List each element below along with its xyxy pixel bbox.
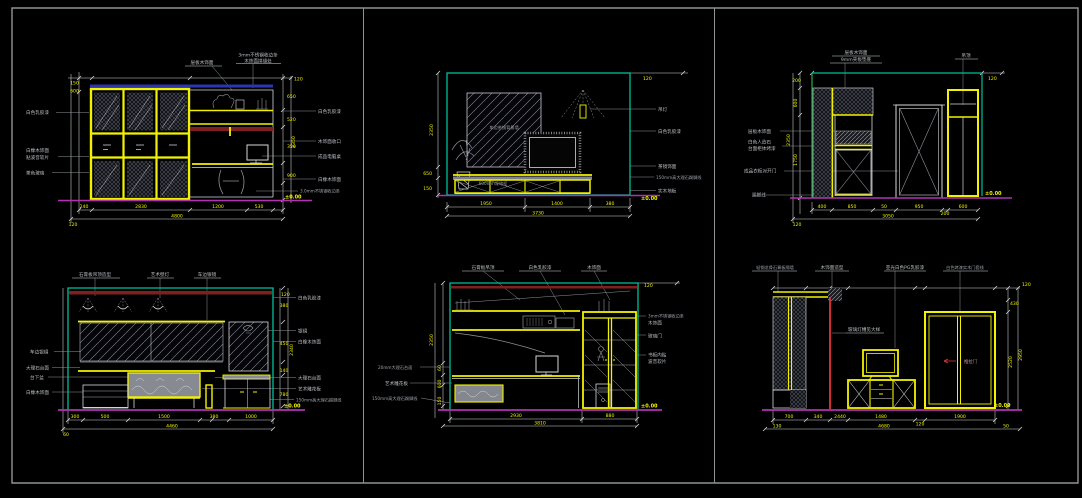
material-label: 实木地板 <box>658 188 677 195</box>
level-marker: ±0.00 <box>641 196 658 202</box>
material-label: 艺术雕花板 <box>298 386 321 393</box>
wardrobe-unit <box>91 89 189 199</box>
desk-shelving <box>452 299 610 408</box>
panel-wardrobe-desk-elevation: 层板木饰面 3mm不锈钢收边条 木饰面拼缝处 白色乳胶漆 白橡木饰面 贴波音软片… <box>26 52 341 229</box>
material-label: 茶镜饰面 <box>658 163 677 170</box>
dim-label: 150 <box>437 397 443 406</box>
material-label: 20mm大理石台面 <box>378 364 412 371</box>
material-label: 白色乳胶漆 <box>318 108 341 115</box>
material-label: 木饰面 <box>587 264 601 271</box>
material-label: 车边银镜 <box>30 349 49 356</box>
dim-label: 1200 <box>212 204 224 210</box>
dim-label: 120 <box>916 422 925 428</box>
panel-entry-closet-elevation: 层板木饰面 9mm夹板垫底 吊顶 层板木饰面 白色人造石 台面柜体烤漆 成品衣柜… <box>744 49 1012 228</box>
panel-study-elevation: 石膏板吊顶 白色乳胶漆 木饰面 20mm大理石台面 艺术雕花板 150mm高大理… <box>372 264 685 428</box>
dim-label: 120 <box>69 222 78 228</box>
tv-cabinet <box>453 175 592 194</box>
pendant-lamp <box>561 90 605 118</box>
material-label: 3mm不锈钢收边条 <box>238 52 278 59</box>
dim-label: 2350 <box>786 134 792 146</box>
dim-label: 650 <box>423 171 432 177</box>
dim-label: 150 <box>423 186 432 192</box>
dim-label: 850 <box>848 204 857 210</box>
dim-label: 240 <box>80 204 89 210</box>
dim-label: 340 <box>814 414 823 420</box>
dim-label: 600 <box>959 204 968 210</box>
dim-label: 120 <box>294 77 303 83</box>
panel-vanity-elevation: 石膏板吊顶造型 艺术壁灯 车边银镜 车边银镜 大理石台面 台下盆 白橡木饰面 白… <box>26 271 342 438</box>
dim-label: 4800 <box>171 214 183 220</box>
level-marker: ±0.00 <box>985 191 1002 197</box>
door-type-label: 推拉门 <box>964 358 977 365</box>
dim-label: 60 <box>63 432 69 438</box>
material-label: 车边茶镜背景墙 <box>489 124 518 131</box>
partition-wall <box>773 288 842 408</box>
side-low-cabinet <box>83 385 128 408</box>
dim-label: 700 <box>785 414 794 420</box>
material-label: 3mm不锈钢收边条 <box>648 313 685 320</box>
tv-screen <box>525 133 580 172</box>
dim-label: 2340 <box>289 344 295 356</box>
wardrobe-cabinet <box>948 90 978 196</box>
material-label: 玻璃门 <box>648 333 662 340</box>
dim-label: 1750 <box>793 154 799 166</box>
material-label: 台面柜体烤漆 <box>748 145 776 152</box>
dim-label: 50 <box>1003 424 1009 430</box>
dim-label: 120 <box>793 222 802 228</box>
wall-lamps <box>79 298 167 312</box>
material-label: 白橡木饰面 <box>298 339 321 346</box>
material-label: 书柜内贴 <box>648 352 667 359</box>
material-label: 层板木饰面 <box>191 59 214 66</box>
dresser-mirror <box>229 322 268 371</box>
material-label: 白橡木饰面 <box>26 147 49 154</box>
dim-label: 1480 <box>875 414 887 420</box>
dim-label: 380 <box>210 414 219 420</box>
tv-unit <box>848 350 915 408</box>
material-label: 150mm高大理石踢脚线 <box>296 397 342 404</box>
material-label: 白橡木饰面 <box>26 389 49 396</box>
dim-label: 2350 <box>291 136 297 148</box>
dim-label: 400 <box>818 204 827 210</box>
material-label: 木饰面收口 <box>318 138 341 145</box>
material-label: 层板木饰面 <box>845 49 868 56</box>
material-label: 3.0mm不锈钢收边条 <box>300 188 341 195</box>
dim-label: 2350 <box>429 334 435 346</box>
material-label: 吊顶 <box>961 53 971 59</box>
dim-label: 3810 <box>534 421 546 427</box>
material-label: 车边银镜 <box>198 271 217 278</box>
dim-label: 2930 <box>510 413 522 419</box>
level-marker: ±0.00 <box>994 403 1011 409</box>
side-cabinet <box>835 115 872 196</box>
ceiling-band <box>69 291 272 295</box>
material-label: 白色人造石 <box>748 139 771 146</box>
panel-bedroom-elevation: 轻钢龙骨石膏板隔墙 木饰面造型 亚光白色PG乳胶漆 白色烤漆实木门套线 玻璃灯槽… <box>752 264 1031 431</box>
dim-label: 2520 <box>1008 356 1014 368</box>
dim-label: 380 <box>606 201 615 207</box>
desk-area <box>190 90 273 197</box>
material-label: 亚光白色PG乳胶漆 <box>886 264 925 271</box>
dim-label: 300 <box>71 414 80 420</box>
dim-label: 950 <box>915 204 924 210</box>
material-label: 吊灯 <box>658 106 668 113</box>
level-marker: ±0.00 <box>285 195 302 201</box>
carved-drawer-front <box>455 385 503 402</box>
ceiling-band <box>451 286 637 289</box>
vanity-cabinet <box>78 371 215 408</box>
dim-label: 140 <box>280 368 289 374</box>
dim-label: 500 <box>101 414 110 420</box>
dim-label: 1500 <box>158 414 170 420</box>
shelf-decor-sketch <box>213 94 268 109</box>
dim-label: 3730 <box>532 211 544 217</box>
dim-label: 2440 <box>834 414 846 420</box>
material-label: 9mm夹板垫底 <box>841 56 872 63</box>
dim-label: 120 <box>1022 282 1031 288</box>
material-label: 木饰面 <box>648 320 662 327</box>
desktop-monitor <box>247 145 268 160</box>
dim-label: 2950 <box>1018 349 1024 361</box>
dim-label: 4460 <box>166 424 178 430</box>
material-label: 木饰面造型 <box>821 264 844 271</box>
dim-label: 430 <box>1010 301 1019 307</box>
dim-label: 2350 <box>429 124 435 136</box>
wardrobe-sliding-doors <box>925 312 995 408</box>
material-label: 成品衣柜对开门 <box>744 168 777 175</box>
material-label: 银镜 <box>298 328 308 335</box>
dim-label: 650 <box>287 94 296 100</box>
chair-sketch <box>219 170 244 194</box>
material-label: 石膏板吊顶 <box>472 264 495 271</box>
material-label: 层板木饰面 <box>748 128 771 135</box>
dim-label: 1000 <box>245 414 257 420</box>
right-cabinet <box>223 375 270 408</box>
material-label: 轻钢龙骨石膏板隔墙 <box>756 264 794 271</box>
material-label: 白色乳胶漆 <box>529 264 552 271</box>
material-label: 石膏板吊顶造型 <box>79 271 112 278</box>
material-label: 木饰面拼缝处 <box>244 58 272 65</box>
level-marker: ±0.00 <box>284 404 301 410</box>
dim-label: 200 <box>792 78 801 84</box>
door <box>893 105 945 198</box>
dim-label: 900 <box>287 173 296 179</box>
dim-label: 60 <box>437 365 443 371</box>
door-handles <box>103 145 177 150</box>
dim-label: 530 <box>255 204 264 210</box>
dim-label: 1950 <box>480 201 492 207</box>
material-label: 白色烤漆实木门套线 <box>946 264 985 271</box>
material-label: 成品电脑桌 <box>318 153 341 160</box>
material-label: 艺术雕花板 <box>385 380 408 387</box>
material-label: 白橡木饰面 <box>318 176 341 183</box>
dim-label: 600 <box>793 99 799 108</box>
sheet-frame <box>12 8 1078 483</box>
dim-label: 780 <box>280 392 289 398</box>
level-marker: ±0.00 <box>641 404 658 410</box>
dim-label: 600 <box>437 380 443 389</box>
dim-label: 450 <box>280 341 289 347</box>
material-label: 波音软片 <box>648 358 667 365</box>
cad-viewport: 层板木饰面 3mm不锈钢收边条 木饰面拼缝处 白色乳胶漆 白橡木饰面 贴波音软片… <box>0 0 1082 498</box>
dim-label: 520 <box>287 117 296 123</box>
material-label: 大理石台面 <box>26 365 49 372</box>
dim-label: 1400 <box>551 201 563 207</box>
material-label: 150mm高大理石踢脚线 <box>656 174 702 181</box>
material-label: 台下盆 <box>30 374 44 381</box>
material-label: 贴波音软片 <box>26 154 49 161</box>
soffit-band <box>90 85 273 88</box>
material-label: 玻璃灯槽见大样 <box>848 326 881 333</box>
material-label: 150mm高大理石踢脚线 <box>372 395 418 402</box>
bookcase <box>583 299 636 408</box>
material-label: 600mm深地柜 <box>479 180 508 187</box>
dim-label: 200 <box>941 211 950 217</box>
dim-label: 600 <box>70 89 79 95</box>
dim-label: 120 <box>643 76 652 82</box>
dim-label: 2830 <box>135 204 147 210</box>
dim-label: 120 <box>644 283 653 289</box>
material-label: 茶色玻璃 <box>26 170 45 177</box>
dim-label: 50 <box>881 204 887 210</box>
desk-monitor <box>536 356 558 372</box>
material-label: 白色乳胶漆 <box>26 109 49 116</box>
main-mirror <box>78 322 225 363</box>
dim-label: 4680 <box>878 424 890 430</box>
material-label: 白色乳胶漆 <box>658 128 681 135</box>
material-label: 踢脚线 <box>752 192 766 199</box>
dim-label: 3050 <box>882 214 894 220</box>
cad-sheet: 层板木饰面 3mm不锈钢收边条 木饰面拼缝处 白色乳胶漆 白橡木饰面 贴波音软片… <box>0 0 1082 498</box>
dim-label: 120 <box>281 292 290 298</box>
material-label: 艺术壁灯 <box>151 271 170 278</box>
panel-dividers <box>364 8 715 483</box>
dim-label: 880 <box>606 413 615 419</box>
material-label: 大理石台面 <box>298 375 321 382</box>
material-label: 白色乳胶漆 <box>298 295 321 302</box>
dim-label: 380 <box>280 303 289 309</box>
dim-label: 130 <box>773 424 782 430</box>
dim-label: 150 <box>70 81 79 87</box>
accent-band <box>190 127 273 131</box>
panel-tv-wall-elevation: 车边茶镜背景墙 600mm深地柜 吊灯 白色乳胶漆 茶镜饰面 150mm高大理石… <box>423 71 702 218</box>
dim-label: 120 <box>988 76 997 82</box>
dim-label: 1900 <box>954 414 966 420</box>
